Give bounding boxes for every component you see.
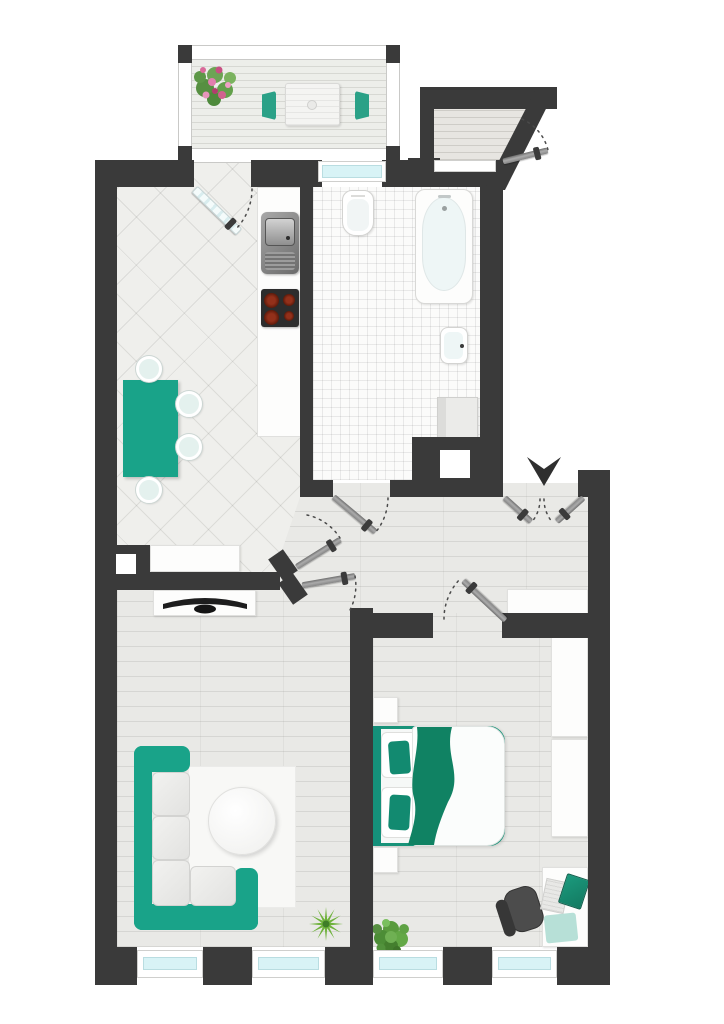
chimney-niche [116,554,136,574]
wall-right [588,470,610,985]
bed-accent-pillow [388,740,411,774]
vestibule-floor [432,107,532,160]
sofa-cushion [152,860,190,906]
patio-table-center [307,100,317,110]
toilet [342,190,374,236]
wall-bottom [443,947,492,985]
bathtub-faucet [438,195,451,198]
burner [284,311,294,321]
wall-bottom [325,947,373,985]
hall-sideboard [507,589,588,615]
living-window-glass [143,957,197,970]
bathroom-window-glass [322,165,382,178]
wall-bottom [557,947,610,985]
kitchen-sideboard [150,545,240,572]
wall-bottom [95,947,137,985]
burner [264,293,279,308]
sink-drainboard [265,252,295,270]
toilet-lid-line [351,195,365,197]
living-window-glass [258,957,319,970]
sofa-cushion [152,816,190,860]
wall-bedroom-top-left [363,613,433,638]
nightstand [373,847,398,873]
wash-basin [440,327,468,364]
burner [283,294,295,306]
bathtub-basin [422,197,466,291]
dining-table [123,380,178,477]
washing-machine [437,397,478,438]
wall-bedroom-top-right [502,613,610,638]
dining-chair [136,477,162,503]
floor-plan [0,0,724,1024]
cooktop [261,289,299,327]
tv-sideboard [153,590,256,616]
bed-headboard [373,726,381,846]
dining-chair [176,391,202,417]
door-handle [517,508,530,522]
vestibule-window [434,160,496,172]
notepad [544,912,579,943]
bath-wall-niche [440,450,470,478]
wardrobe [551,633,588,737]
dining-chair [176,434,202,460]
basin-faucet [460,344,464,348]
sofa-cushion [190,866,236,906]
wall-bottom [203,947,252,985]
wall-kitchen-bath-divider [300,160,313,497]
entry-direction-arrow [527,457,561,486]
wall-bath-bottom-stub [300,480,333,497]
bed-accent-pillow [388,794,411,830]
bed-duvet [412,726,505,846]
door-handle [533,146,542,160]
wall-bath-right [480,160,503,497]
railing-post [178,45,192,63]
patio-chair-left [262,91,276,120]
sofa-front-bottom [134,904,258,930]
burner [264,310,279,325]
door-handle [224,217,237,231]
bathtub [415,189,473,304]
wall-living-bedroom-divider [350,608,373,985]
door-handle [464,582,477,596]
sink-faucet [286,236,290,240]
wall-top-kitchen [95,160,194,187]
sofa-back-left [134,746,152,930]
bathtub-drain [442,206,447,211]
sink-basin [265,218,295,246]
toilet-bowl [347,199,369,231]
dining-chair [136,356,162,382]
balcony-railing-top [178,45,400,60]
patio-chair-right [355,91,369,120]
round-coffee-table [208,787,276,855]
bedroom-window-glass [498,957,551,970]
wall-vestibule-left [420,87,434,167]
wardrobe [551,739,588,837]
wall-vestibule-top [424,87,557,109]
door-handle [325,538,337,552]
sofa-cushion [152,772,190,816]
railing-post [386,45,400,63]
nightstand [373,697,398,723]
kitchen-sink [261,212,299,274]
bedroom-window-glass [379,957,437,970]
